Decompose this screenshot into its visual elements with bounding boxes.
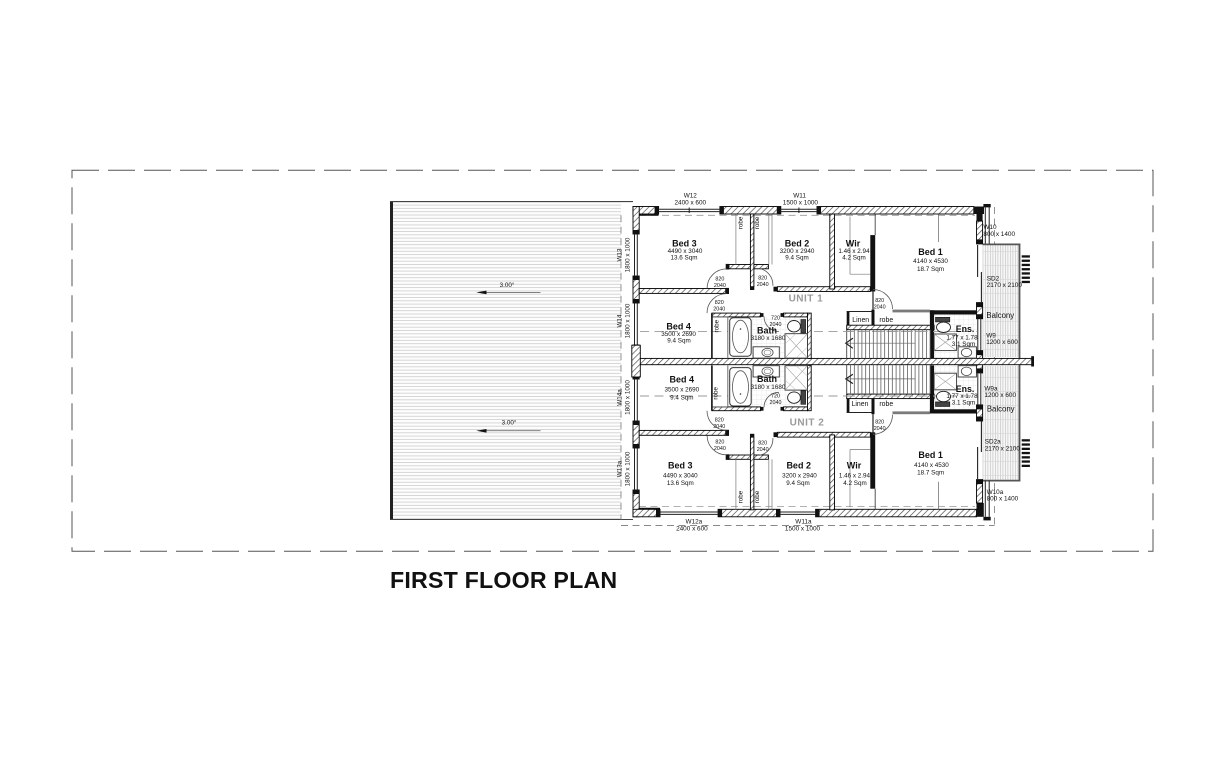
- svg-text:robe: robe: [879, 317, 893, 324]
- svg-text:Bed 2: Bed 2: [786, 461, 811, 471]
- svg-text:2040: 2040: [713, 424, 725, 430]
- svg-text:3.1 Sqm: 3.1 Sqm: [952, 341, 975, 348]
- svg-text:W12a: W12a: [686, 519, 703, 526]
- svg-text:W14a: W14a: [617, 389, 624, 406]
- svg-text:720: 720: [771, 394, 780, 400]
- svg-text:9.4 Sqm: 9.4 Sqm: [786, 480, 809, 487]
- svg-text:820: 820: [715, 277, 724, 283]
- svg-text:3200 x 2940: 3200 x 2940: [782, 472, 817, 479]
- svg-text:9.4 Sqm: 9.4 Sqm: [670, 395, 693, 402]
- svg-text:18.7 Sqm: 18.7 Sqm: [917, 266, 944, 273]
- svg-text:Ens.: Ens.: [956, 324, 975, 334]
- svg-text:2040: 2040: [713, 307, 725, 313]
- svg-text:1500 x 1000: 1500 x 1000: [785, 526, 821, 533]
- svg-text:Linen: Linen: [852, 317, 869, 324]
- svg-text:W13a: W13a: [617, 460, 624, 477]
- svg-text:Bed 1: Bed 1: [918, 450, 943, 460]
- svg-text:820: 820: [715, 440, 724, 446]
- svg-text:2040: 2040: [770, 400, 782, 406]
- svg-text:1200 x 600: 1200 x 600: [986, 339, 1018, 346]
- svg-text:820: 820: [758, 441, 767, 447]
- svg-text:W14: W14: [617, 314, 624, 327]
- svg-text:4.2 Sqm: 4.2 Sqm: [842, 255, 865, 262]
- svg-text:Bed 2: Bed 2: [785, 239, 810, 249]
- svg-text:FIRST FLOOR PLAN: FIRST FLOOR PLAN: [390, 567, 617, 593]
- svg-text:4140 x 4530: 4140 x 4530: [914, 462, 949, 469]
- svg-text:Balcony: Balcony: [987, 404, 1015, 413]
- svg-text:1200 x 600: 1200 x 600: [984, 392, 1016, 399]
- svg-text:1800 x 1000: 1800 x 1000: [625, 303, 632, 338]
- svg-text:9.4 Sqm: 9.4 Sqm: [785, 255, 808, 262]
- svg-text:2170 x 2100: 2170 x 2100: [987, 282, 1023, 289]
- svg-text:720: 720: [771, 316, 780, 322]
- svg-text:1800 x 1000: 1800 x 1000: [625, 380, 632, 415]
- svg-text:Linen: Linen: [852, 401, 869, 408]
- svg-text:robe: robe: [738, 216, 745, 229]
- svg-text:Bed 4: Bed 4: [666, 321, 691, 331]
- svg-text:13.6 Sqm: 13.6 Sqm: [667, 480, 694, 487]
- svg-text:robe: robe: [754, 490, 761, 503]
- svg-text:W11a: W11a: [795, 519, 812, 526]
- svg-text:3.1 Sqm: 3.1 Sqm: [952, 400, 975, 407]
- svg-text:2040: 2040: [874, 305, 886, 311]
- svg-text:820: 820: [715, 418, 724, 424]
- svg-text:3180 x 1680: 3180 x 1680: [751, 384, 786, 391]
- svg-text:2040: 2040: [714, 446, 726, 452]
- svg-text:3.00°: 3.00°: [500, 281, 515, 289]
- svg-text:Bed 1: Bed 1: [918, 247, 943, 257]
- svg-text:3500 x 2690: 3500 x 2690: [664, 386, 699, 393]
- svg-text:4490 x 3040: 4490 x 3040: [663, 472, 698, 479]
- svg-text:800 x 1400: 800 x 1400: [987, 496, 1019, 503]
- svg-text:4.2 Sqm: 4.2 Sqm: [843, 480, 866, 487]
- svg-text:Balcony: Balcony: [986, 311, 1014, 320]
- svg-text:robe: robe: [738, 490, 745, 503]
- svg-text:robe: robe: [713, 387, 720, 400]
- svg-text:Wir: Wir: [847, 461, 862, 471]
- svg-text:1800 x 1000: 1800 x 1000: [625, 451, 632, 486]
- svg-text:UNIT 2: UNIT 2: [790, 418, 825, 429]
- svg-text:820: 820: [875, 420, 884, 426]
- svg-text:13.6 Sqm: 13.6 Sqm: [671, 255, 698, 262]
- svg-text:9.4 Sqm: 9.4 Sqm: [667, 337, 690, 344]
- svg-text:2040: 2040: [770, 322, 782, 328]
- svg-text:2040: 2040: [714, 283, 726, 289]
- svg-text:820: 820: [758, 276, 767, 282]
- svg-text:2040: 2040: [874, 426, 886, 432]
- svg-text:Bath: Bath: [757, 374, 777, 384]
- svg-text:4140 x 4530: 4140 x 4530: [913, 258, 948, 265]
- svg-text:800 x 1400: 800 x 1400: [983, 231, 1015, 238]
- svg-text:820: 820: [875, 298, 884, 304]
- svg-text:robe: robe: [713, 319, 720, 332]
- svg-text:2170 x 2100: 2170 x 2100: [985, 445, 1021, 452]
- svg-text:2040: 2040: [757, 282, 769, 288]
- svg-text:UNIT 1: UNIT 1: [789, 294, 824, 305]
- svg-text:Wir: Wir: [846, 239, 861, 249]
- svg-text:Bed 3: Bed 3: [672, 239, 697, 249]
- svg-text:1800 x 1000: 1800 x 1000: [625, 237, 632, 272]
- svg-text:2040: 2040: [757, 447, 769, 453]
- svg-text:2400 x 600: 2400 x 600: [674, 199, 706, 206]
- svg-text:3180 x 1680: 3180 x 1680: [751, 335, 786, 342]
- svg-text:820: 820: [715, 300, 724, 306]
- svg-text:1.46 x 2.94: 1.46 x 2.94: [839, 472, 871, 479]
- svg-text:robe: robe: [879, 401, 893, 408]
- svg-text:3.00°: 3.00°: [502, 419, 517, 427]
- svg-text:Bed 4: Bed 4: [670, 375, 695, 385]
- svg-text:1500 x 1000: 1500 x 1000: [783, 199, 819, 206]
- svg-text:18.7 Sqm: 18.7 Sqm: [917, 469, 944, 476]
- svg-text:robe: robe: [754, 216, 761, 229]
- svg-text:2400 x 600: 2400 x 600: [676, 526, 708, 533]
- svg-text:Bed 3: Bed 3: [668, 461, 693, 471]
- svg-text:W13: W13: [617, 248, 624, 261]
